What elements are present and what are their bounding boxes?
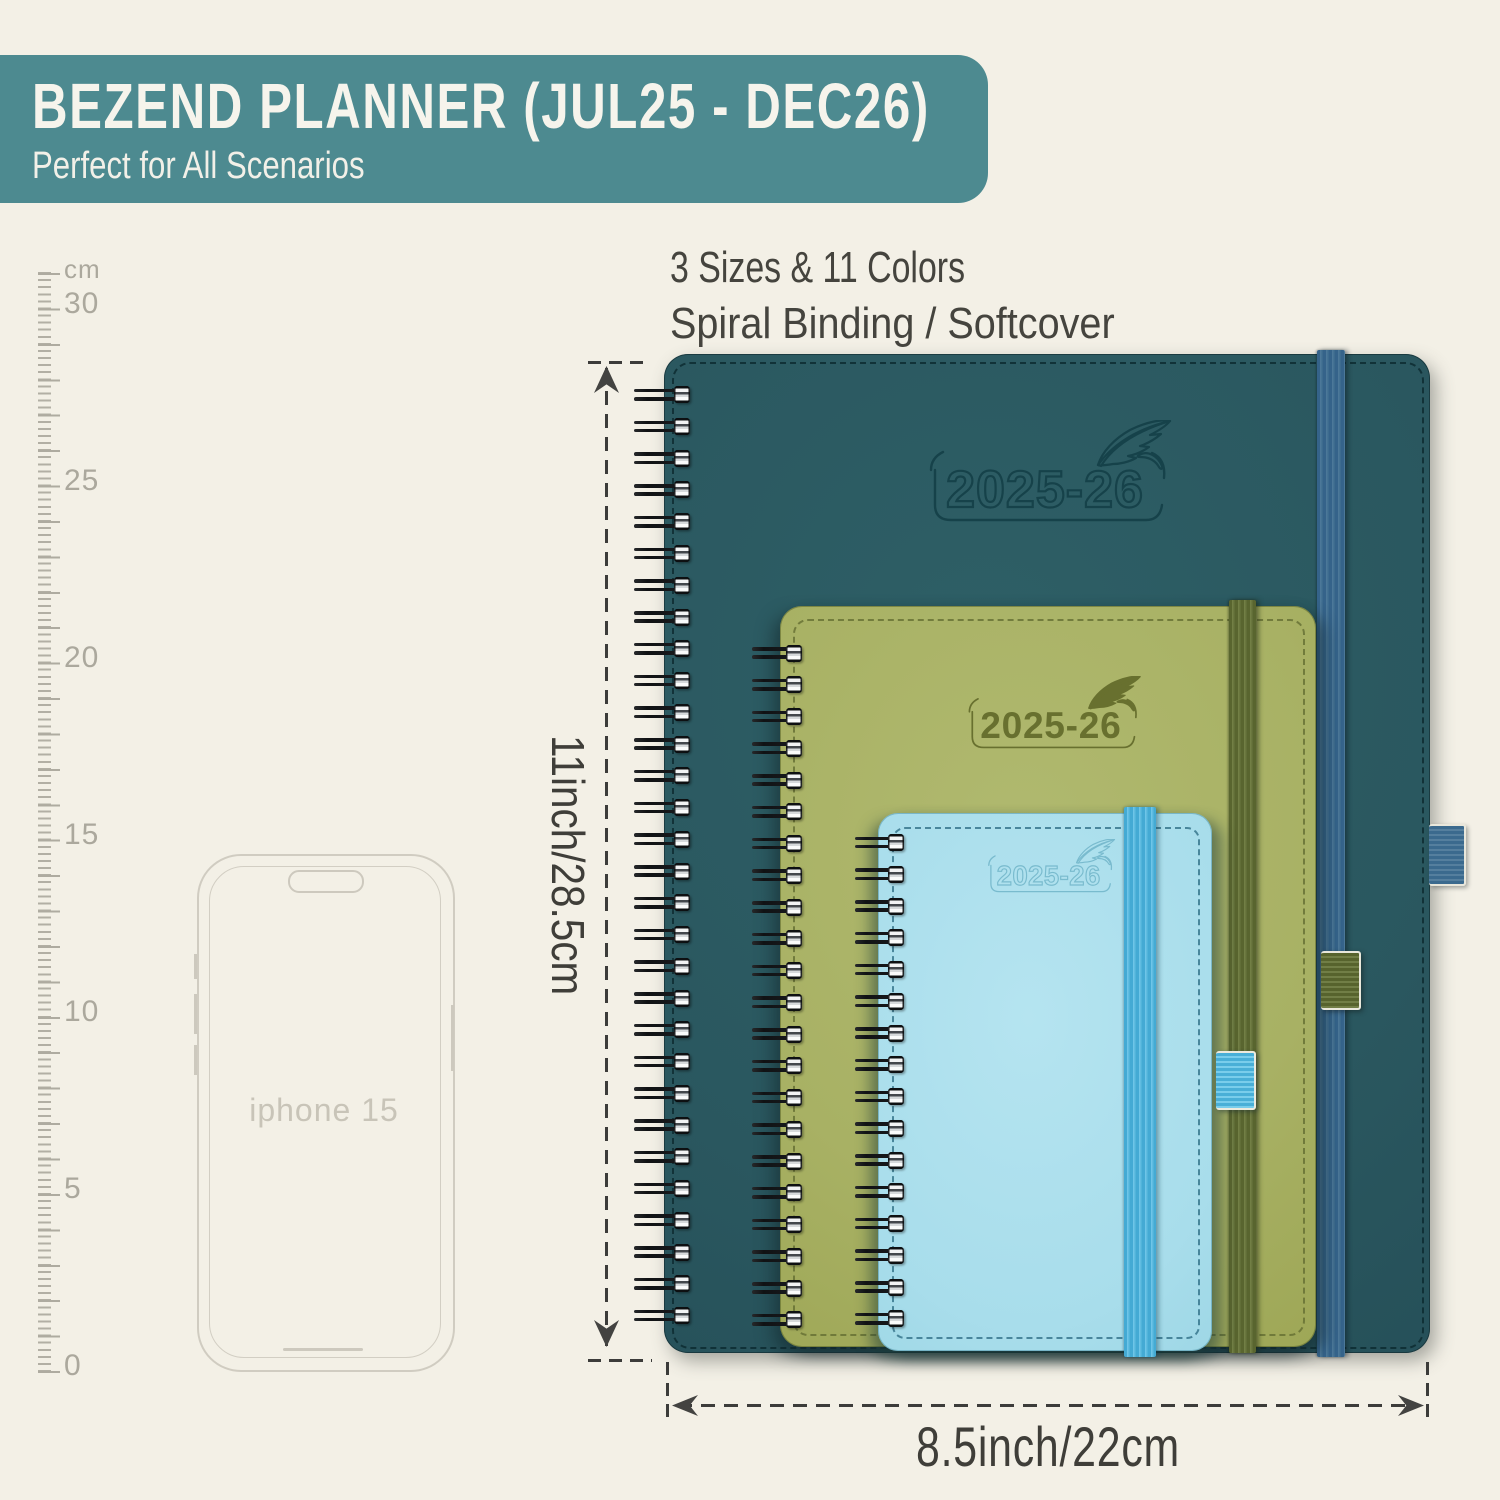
svg-text:2025-26: 2025-26 bbox=[997, 860, 1101, 891]
svg-text:2025-26: 2025-26 bbox=[980, 704, 1121, 746]
svg-text:2025-26: 2025-26 bbox=[946, 461, 1144, 519]
